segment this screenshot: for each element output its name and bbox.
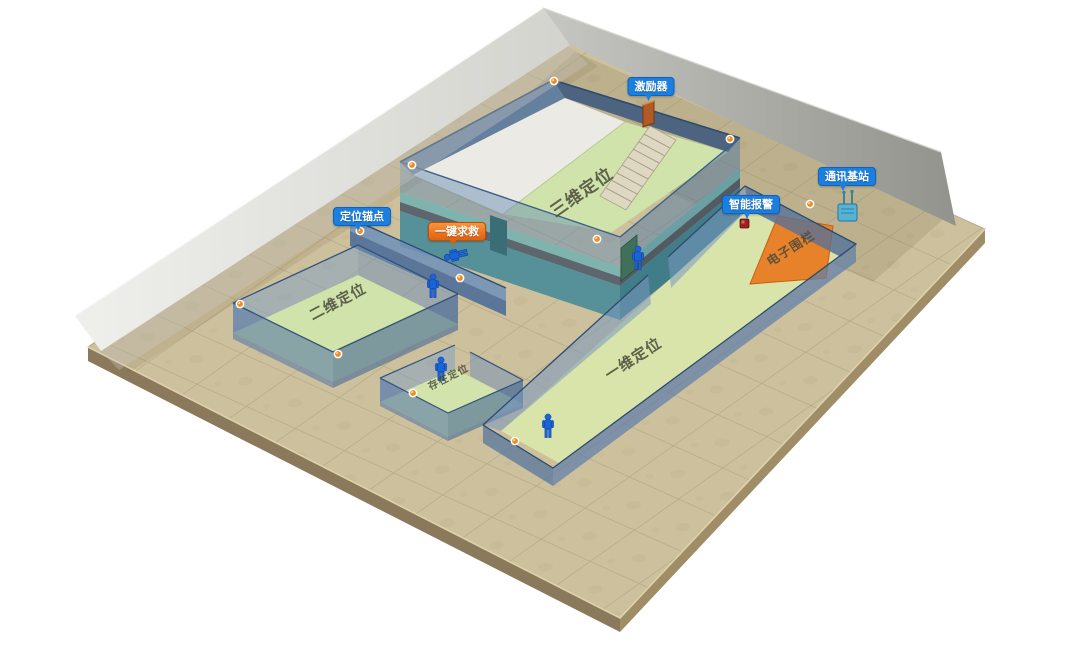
callout-exciter-label: 激励器 <box>635 80 668 93</box>
callout-comm-base-station: 通讯基站 <box>818 167 876 186</box>
anchor-dot <box>334 350 343 359</box>
callout-positioning-anchor-label: 定位锚点 <box>340 210 384 223</box>
anchor-dot <box>511 437 520 446</box>
callout-positioning-anchor: 定位锚点 <box>333 207 391 226</box>
anchor-dot <box>593 235 602 244</box>
callout-smart-alarm-label: 智能报警 <box>729 198 773 211</box>
anchor-dot <box>806 200 815 209</box>
anchor-dot <box>726 135 735 144</box>
callout-one-key-sos-label: 一键求救 <box>435 225 479 238</box>
anchor-dot <box>456 274 465 283</box>
callout-one-key-sos: 一键求救 <box>428 222 486 241</box>
callout-comm-base-station-label: 通讯基站 <box>825 170 869 183</box>
scene-svg: 三维定位 二维定位 一维定位 存在定位 电子围栏 <box>0 0 1079 650</box>
anchor-dot <box>550 77 559 86</box>
anchor-dot <box>409 389 418 398</box>
anchor-dot <box>408 161 417 170</box>
callout-smart-alarm: 智能报警 <box>722 195 780 214</box>
isometric-scene: 三维定位 二维定位 一维定位 存在定位 电子围栏 激励器 通讯基站 智能报警 定… <box>0 0 1079 650</box>
callout-exciter: 激励器 <box>628 77 675 96</box>
anchor-dot <box>236 300 245 309</box>
building-door-left <box>490 215 507 256</box>
